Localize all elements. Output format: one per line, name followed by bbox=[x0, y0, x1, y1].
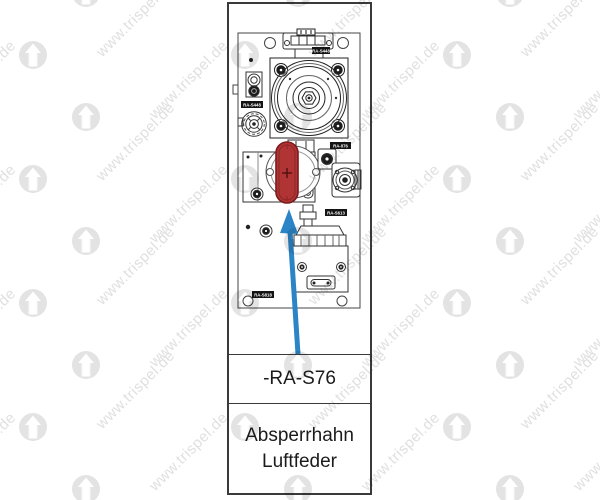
watermark-up-arrow-logo-icon bbox=[18, 288, 48, 318]
watermark-text: www.trispel.de bbox=[0, 409, 19, 494]
schematic-svg: RA-S448 bbox=[229, 4, 370, 354]
description-line-1: Absperrhahn bbox=[245, 423, 354, 449]
regulator-flange bbox=[270, 58, 348, 138]
watermark-text: www.trispel.de bbox=[0, 37, 19, 122]
watermark-text: www.trispel.de bbox=[93, 0, 178, 61]
watermark-up-arrow-logo-icon bbox=[442, 288, 472, 318]
watermark-up-arrow-logo-icon bbox=[71, 474, 101, 500]
badge-right: RA-876 bbox=[330, 142, 351, 149]
watermark-up-arrow-logo-icon bbox=[495, 102, 525, 132]
watermark-text: www.trispel.de bbox=[146, 37, 231, 122]
screenshot-stage: RA-S448 bbox=[0, 0, 600, 500]
watermark-up-arrow-logo-icon bbox=[442, 164, 472, 194]
badge-bottom-left: RA-S818 bbox=[252, 291, 274, 298]
badge-right-label: RA-876 bbox=[333, 143, 348, 148]
watermark-up-arrow-logo-icon bbox=[495, 0, 525, 8]
watermark-text: www.trispel.de bbox=[0, 161, 19, 246]
watermark-text: www.trispel.de bbox=[570, 161, 600, 246]
component-description: Absperrhahn Luftfeder bbox=[229, 403, 370, 493]
watermark-up-arrow-logo-icon bbox=[495, 350, 525, 380]
watermark-up-arrow-logo-icon bbox=[71, 350, 101, 380]
badge-left: RA-S448 bbox=[241, 101, 263, 108]
badge-top: RA-S448 bbox=[312, 47, 330, 54]
watermark-text: www.trispel.de bbox=[93, 99, 178, 184]
watermark-text: www.trispel.de bbox=[570, 285, 600, 370]
watermark-text: www.trispel.de bbox=[570, 409, 600, 494]
badge-left-label: RA-S448 bbox=[243, 102, 261, 107]
right-fitting bbox=[332, 163, 361, 197]
badge-mid-right: RA-S613 bbox=[325, 209, 347, 216]
watermark-text: www.trispel.de bbox=[517, 347, 600, 432]
watermark-text: www.trispel.de bbox=[146, 161, 231, 246]
watermark-up-arrow-logo-icon bbox=[71, 226, 101, 256]
watermark-text: www.trispel.de bbox=[93, 223, 178, 308]
watermark-text: www.trispel.de bbox=[146, 409, 231, 494]
watermark-text: www.trispel.de bbox=[517, 99, 600, 184]
watermark-up-arrow-logo-icon bbox=[18, 40, 48, 70]
watermark-text: www.trispel.de bbox=[570, 37, 600, 122]
watermark-text: www.trispel.de bbox=[146, 285, 231, 370]
watermark-up-arrow-logo-icon bbox=[442, 40, 472, 70]
watermark-text: www.trispel.de bbox=[517, 223, 600, 308]
watermark-up-arrow-logo-icon bbox=[18, 412, 48, 442]
watermark-up-arrow-logo-icon bbox=[442, 412, 472, 442]
badge-top-label: RA-S448 bbox=[312, 48, 330, 53]
watermark-text: www.trispel.de bbox=[0, 285, 19, 370]
watermark-up-arrow-logo-icon bbox=[71, 102, 101, 132]
diagram-panel: RA-S448 bbox=[227, 2, 372, 495]
badge-bottom-left-label: RA-S818 bbox=[254, 292, 272, 297]
schematic-drawing: RA-S448 bbox=[229, 4, 370, 354]
watermark-up-arrow-logo-icon bbox=[18, 164, 48, 194]
red-valve-handle bbox=[276, 142, 298, 203]
badge-mid-right-label: RA-S613 bbox=[327, 210, 345, 215]
component-tag: -RA-S76 bbox=[229, 354, 370, 403]
watermark-up-arrow-logo-icon bbox=[71, 0, 101, 8]
watermark-text: www.trispel.de bbox=[517, 0, 600, 61]
watermark-up-arrow-logo-icon bbox=[495, 226, 525, 256]
watermark-text: www.trispel.de bbox=[93, 347, 178, 432]
description-line-2: Luftfeder bbox=[262, 449, 337, 475]
watermark-up-arrow-logo-icon bbox=[495, 474, 525, 500]
